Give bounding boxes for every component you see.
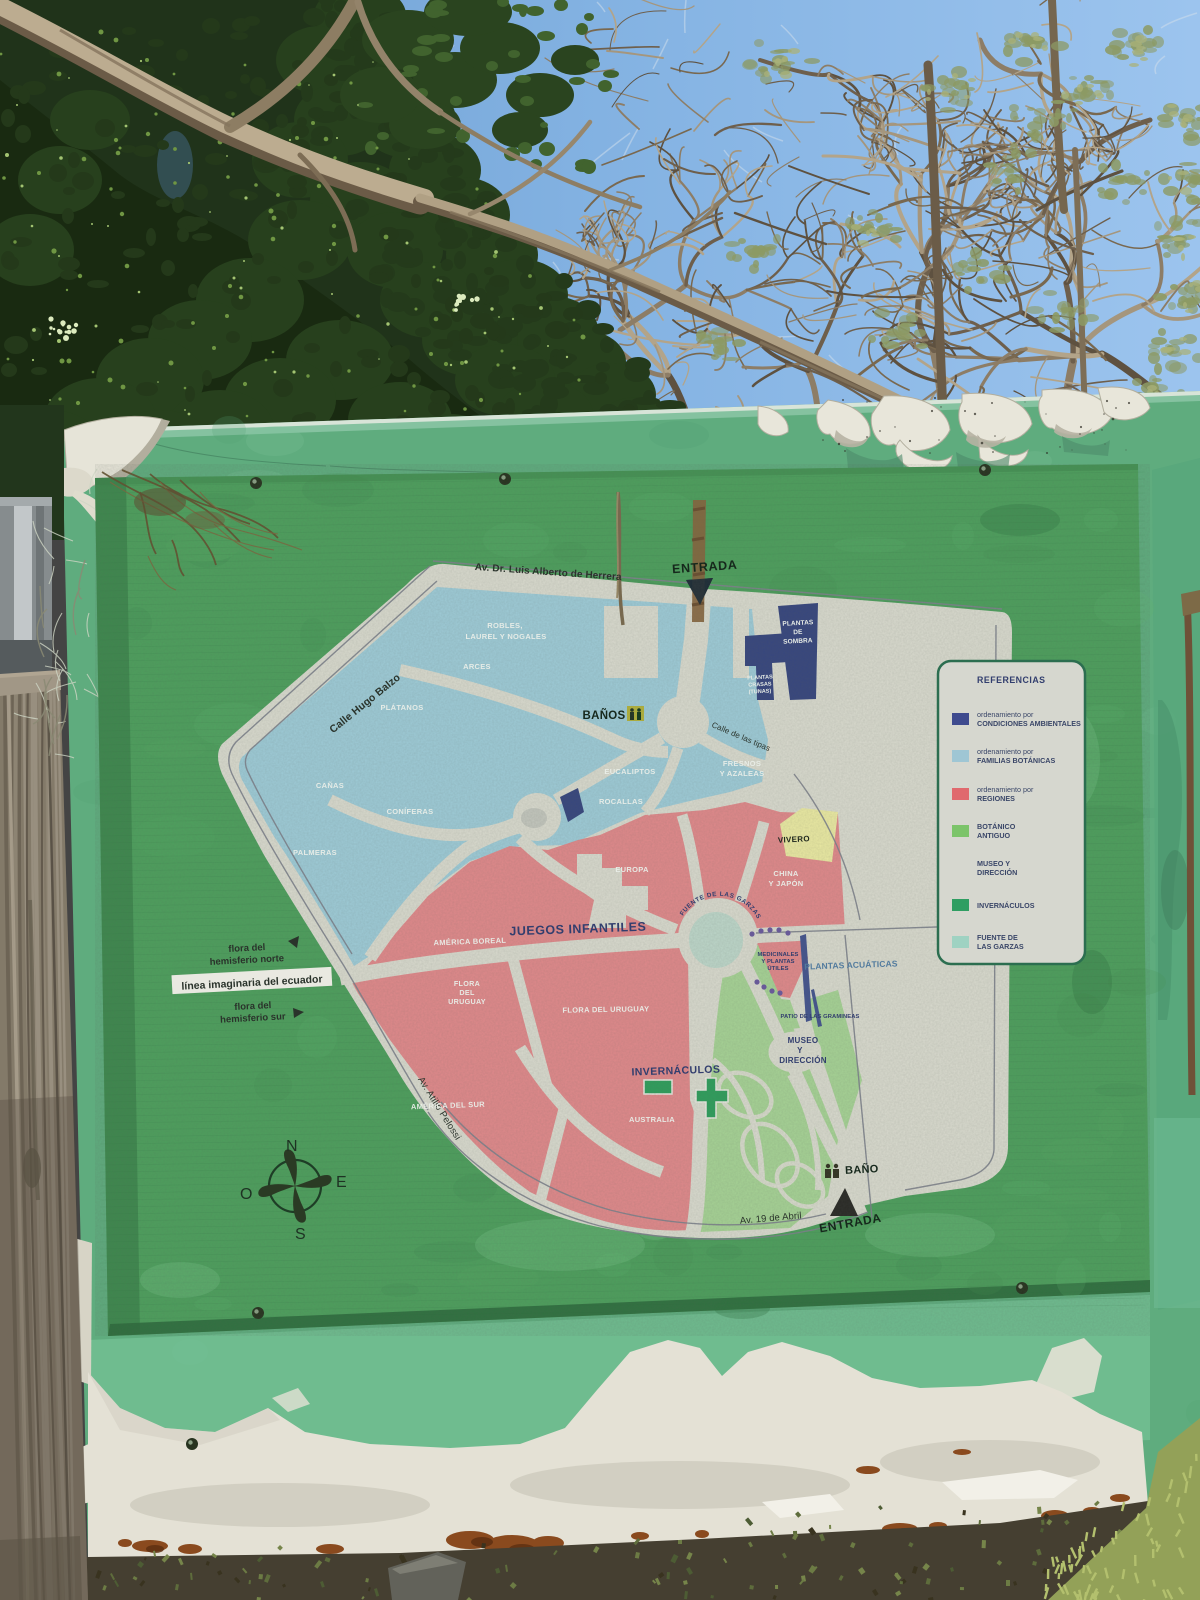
- svg-text:EUROPA: EUROPA: [615, 865, 649, 874]
- svg-text:LAUREL Y NOGALES: LAUREL Y NOGALES: [465, 632, 546, 641]
- svg-text:VIVERO: VIVERO: [778, 834, 810, 845]
- svg-text:(TUNAS): (TUNAS): [749, 688, 772, 695]
- svg-text:E: E: [336, 1174, 347, 1191]
- svg-text:FLORA: FLORA: [454, 979, 480, 988]
- svg-text:INVERNÁCULOS: INVERNÁCULOS: [977, 901, 1035, 910]
- svg-text:CAÑAS: CAÑAS: [316, 781, 344, 790]
- svg-text:ANTIGUO: ANTIGUO: [977, 831, 1011, 840]
- svg-text:MUSEO: MUSEO: [788, 1036, 819, 1045]
- svg-text:DIRECCIÓN: DIRECCIÓN: [779, 1056, 827, 1065]
- svg-text:MUSEO Y: MUSEO Y: [977, 859, 1010, 868]
- svg-text:FUENTE DE: FUENTE DE: [977, 933, 1018, 942]
- svg-text:CONÍFERAS: CONÍFERAS: [387, 807, 434, 816]
- svg-text:ordenamiento por: ordenamiento por: [977, 710, 1034, 719]
- svg-text:O: O: [240, 1186, 252, 1203]
- svg-text:CRASAS: CRASAS: [748, 681, 772, 688]
- svg-text:DEL: DEL: [459, 988, 475, 997]
- svg-text:ARCES: ARCES: [463, 662, 491, 671]
- svg-text:LAS GARZAS: LAS GARZAS: [977, 942, 1024, 951]
- svg-text:Y AZALEAS: Y AZALEAS: [720, 769, 765, 778]
- svg-text:ordenamiento por: ordenamiento por: [977, 785, 1034, 794]
- svg-text:flora del: flora del: [228, 942, 265, 955]
- svg-text:EUCALIPTOS: EUCALIPTOS: [604, 767, 655, 776]
- svg-text:Y PLANTAS: Y PLANTAS: [761, 959, 794, 965]
- svg-text:REGIONES: REGIONES: [977, 794, 1015, 803]
- svg-text:flora del: flora del: [234, 1000, 271, 1013]
- svg-text:BAÑO: BAÑO: [845, 1162, 879, 1177]
- svg-text:Y: Y: [797, 1046, 803, 1055]
- svg-text:ordenamiento por: ordenamiento por: [977, 747, 1034, 756]
- svg-text:S: S: [295, 1226, 306, 1243]
- svg-text:ÚTILES: ÚTILES: [767, 965, 788, 972]
- svg-text:URUGUAY: URUGUAY: [448, 997, 486, 1006]
- svg-text:DIRECCIÓN: DIRECCIÓN: [977, 868, 1017, 877]
- svg-text:FAMILIAS BOTÁNICAS: FAMILIAS BOTÁNICAS: [977, 756, 1055, 765]
- svg-text:ROCALLAS: ROCALLAS: [599, 797, 643, 806]
- svg-text:CHINA: CHINA: [773, 869, 799, 878]
- svg-text:PATIO DE LAS GRAMINEAS: PATIO DE LAS GRAMINEAS: [781, 1014, 860, 1020]
- svg-text:FLORA DEL URUGUAY: FLORA DEL URUGUAY: [562, 1004, 649, 1015]
- svg-text:ROBLES,: ROBLES,: [487, 621, 522, 630]
- svg-text:N: N: [286, 1138, 298, 1155]
- svg-text:DE: DE: [793, 629, 803, 637]
- svg-text:PLÁTANOS: PLÁTANOS: [380, 703, 423, 712]
- svg-text:PALMERAS: PALMERAS: [293, 848, 337, 857]
- svg-text:REFERENCIAS: REFERENCIAS: [977, 675, 1046, 685]
- svg-text:CONDICIONES AMBIENTALES: CONDICIONES AMBIENTALES: [977, 719, 1081, 728]
- svg-text:AUSTRALIA: AUSTRALIA: [629, 1115, 675, 1124]
- svg-text:BAÑOS: BAÑOS: [582, 709, 625, 722]
- svg-text:MEDICINALES: MEDICINALES: [757, 952, 798, 958]
- svg-text:BOTÁNICO: BOTÁNICO: [977, 822, 1016, 831]
- svg-text:Y JAPÓN: Y JAPÓN: [769, 879, 804, 888]
- svg-text:FRESNOS: FRESNOS: [723, 759, 761, 768]
